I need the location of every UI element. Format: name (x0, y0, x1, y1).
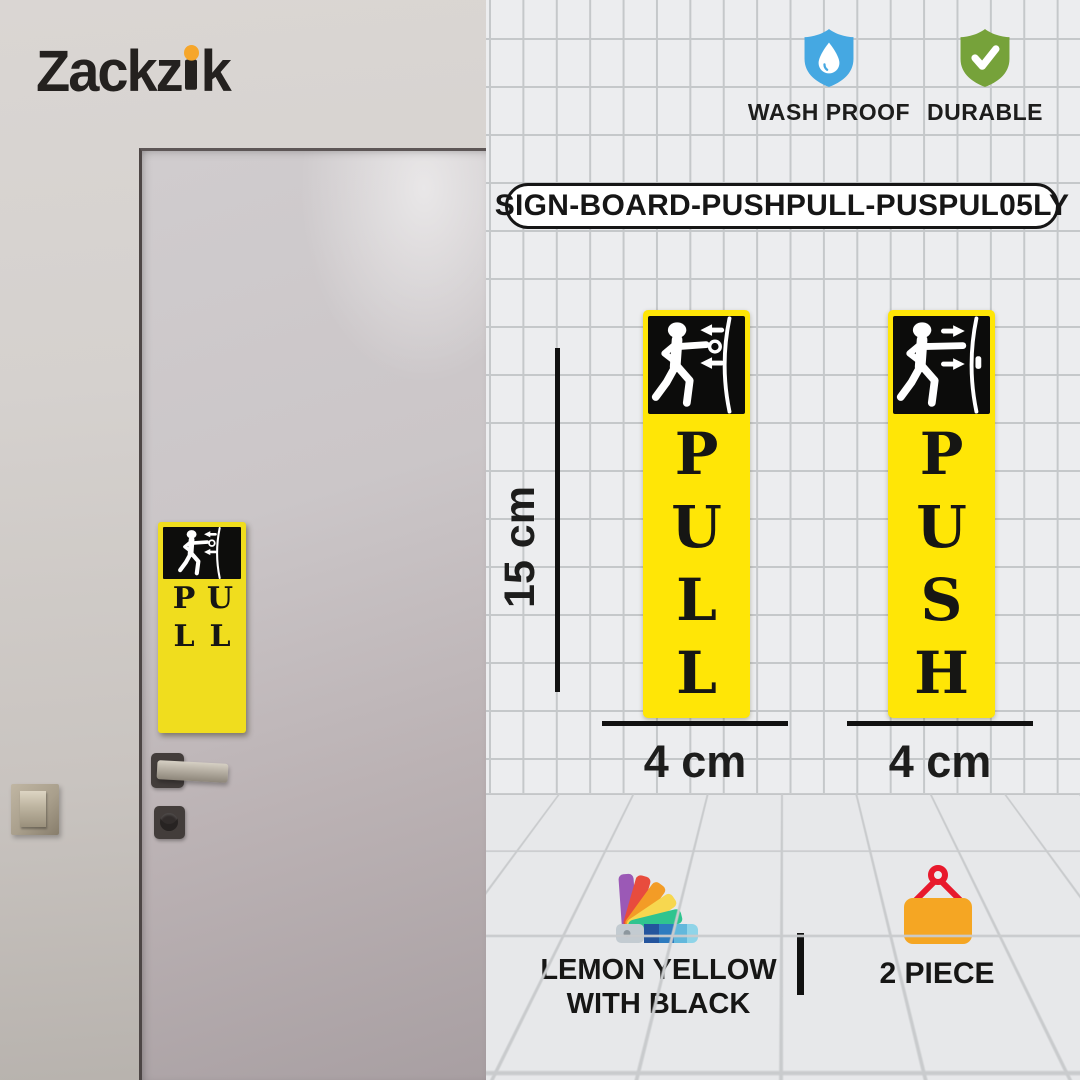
person-pushing-door-icon (893, 316, 990, 414)
push-sign-text: PUSH (888, 418, 995, 714)
badge-wash-proof: WASH PROOF (744, 26, 914, 126)
door-thumbturn-lock (154, 806, 185, 839)
feature-divider (797, 933, 804, 995)
height-dimension-line (555, 348, 560, 692)
pull-sign-text: PULL (643, 418, 750, 714)
hanging-sign-icon (900, 862, 976, 951)
shield-check-icon (956, 26, 1014, 90)
color-feature-line1: LEMON YELLOW (516, 953, 801, 987)
color-swatch-fan-icon (614, 866, 700, 951)
product-listing-image: Zackzk (0, 0, 1080, 1080)
shield-waterdrop-icon (800, 26, 858, 90)
badge-durable-label: DURABLE (927, 99, 1043, 126)
wall-light-switch (11, 784, 59, 835)
brand-logo-orange-dot (184, 45, 199, 61)
door-handle-lever (157, 760, 229, 783)
quantity-feature-label: 2 PIECE (852, 957, 1022, 991)
color-feature-line2: WITH BLACK (516, 987, 801, 1021)
sku-pill: SIGN-BOARD-PUSHPULL-PUSPUL05LY (505, 183, 1059, 229)
pull-width-dimension-line (602, 721, 788, 726)
door-sign-text: PULL (158, 580, 246, 656)
brand-logo-i-glyph (185, 49, 198, 91)
sku-text: SIGN-BOARD-PUSHPULL-PUSPUL05LY (495, 189, 1070, 223)
person-pulling-door-icon (648, 316, 745, 414)
push-width-dimension-line (847, 721, 1033, 726)
height-dimension-label: 15 cm (495, 467, 545, 627)
brand-logo: Zackzk (36, 37, 230, 105)
badge-durable: DURABLE (914, 26, 1056, 126)
brand-logo-text-right: k (201, 38, 230, 104)
info-panel: WASH PROOF DURABLE SIGN-BOARD-PUSHPULL-P… (486, 0, 1080, 1080)
door-photo: Zackzk (0, 0, 486, 1080)
push-sign-board: PUSH (888, 310, 995, 718)
pull-sign-board: PULL (643, 310, 750, 718)
color-feature-label: LEMON YELLOW WITH BLACK (516, 953, 801, 1021)
badge-wash-proof-label: WASH PROOF (748, 99, 910, 126)
pull-sign-on-door: PULL (158, 522, 246, 733)
perspective-floor (486, 793, 1080, 1080)
brand-logo-text-left: Zackz (36, 38, 182, 104)
push-width-dimension-label: 4 cm (847, 736, 1033, 788)
person-pulling-door-icon (163, 527, 241, 579)
pull-width-dimension-label: 4 cm (602, 736, 788, 788)
